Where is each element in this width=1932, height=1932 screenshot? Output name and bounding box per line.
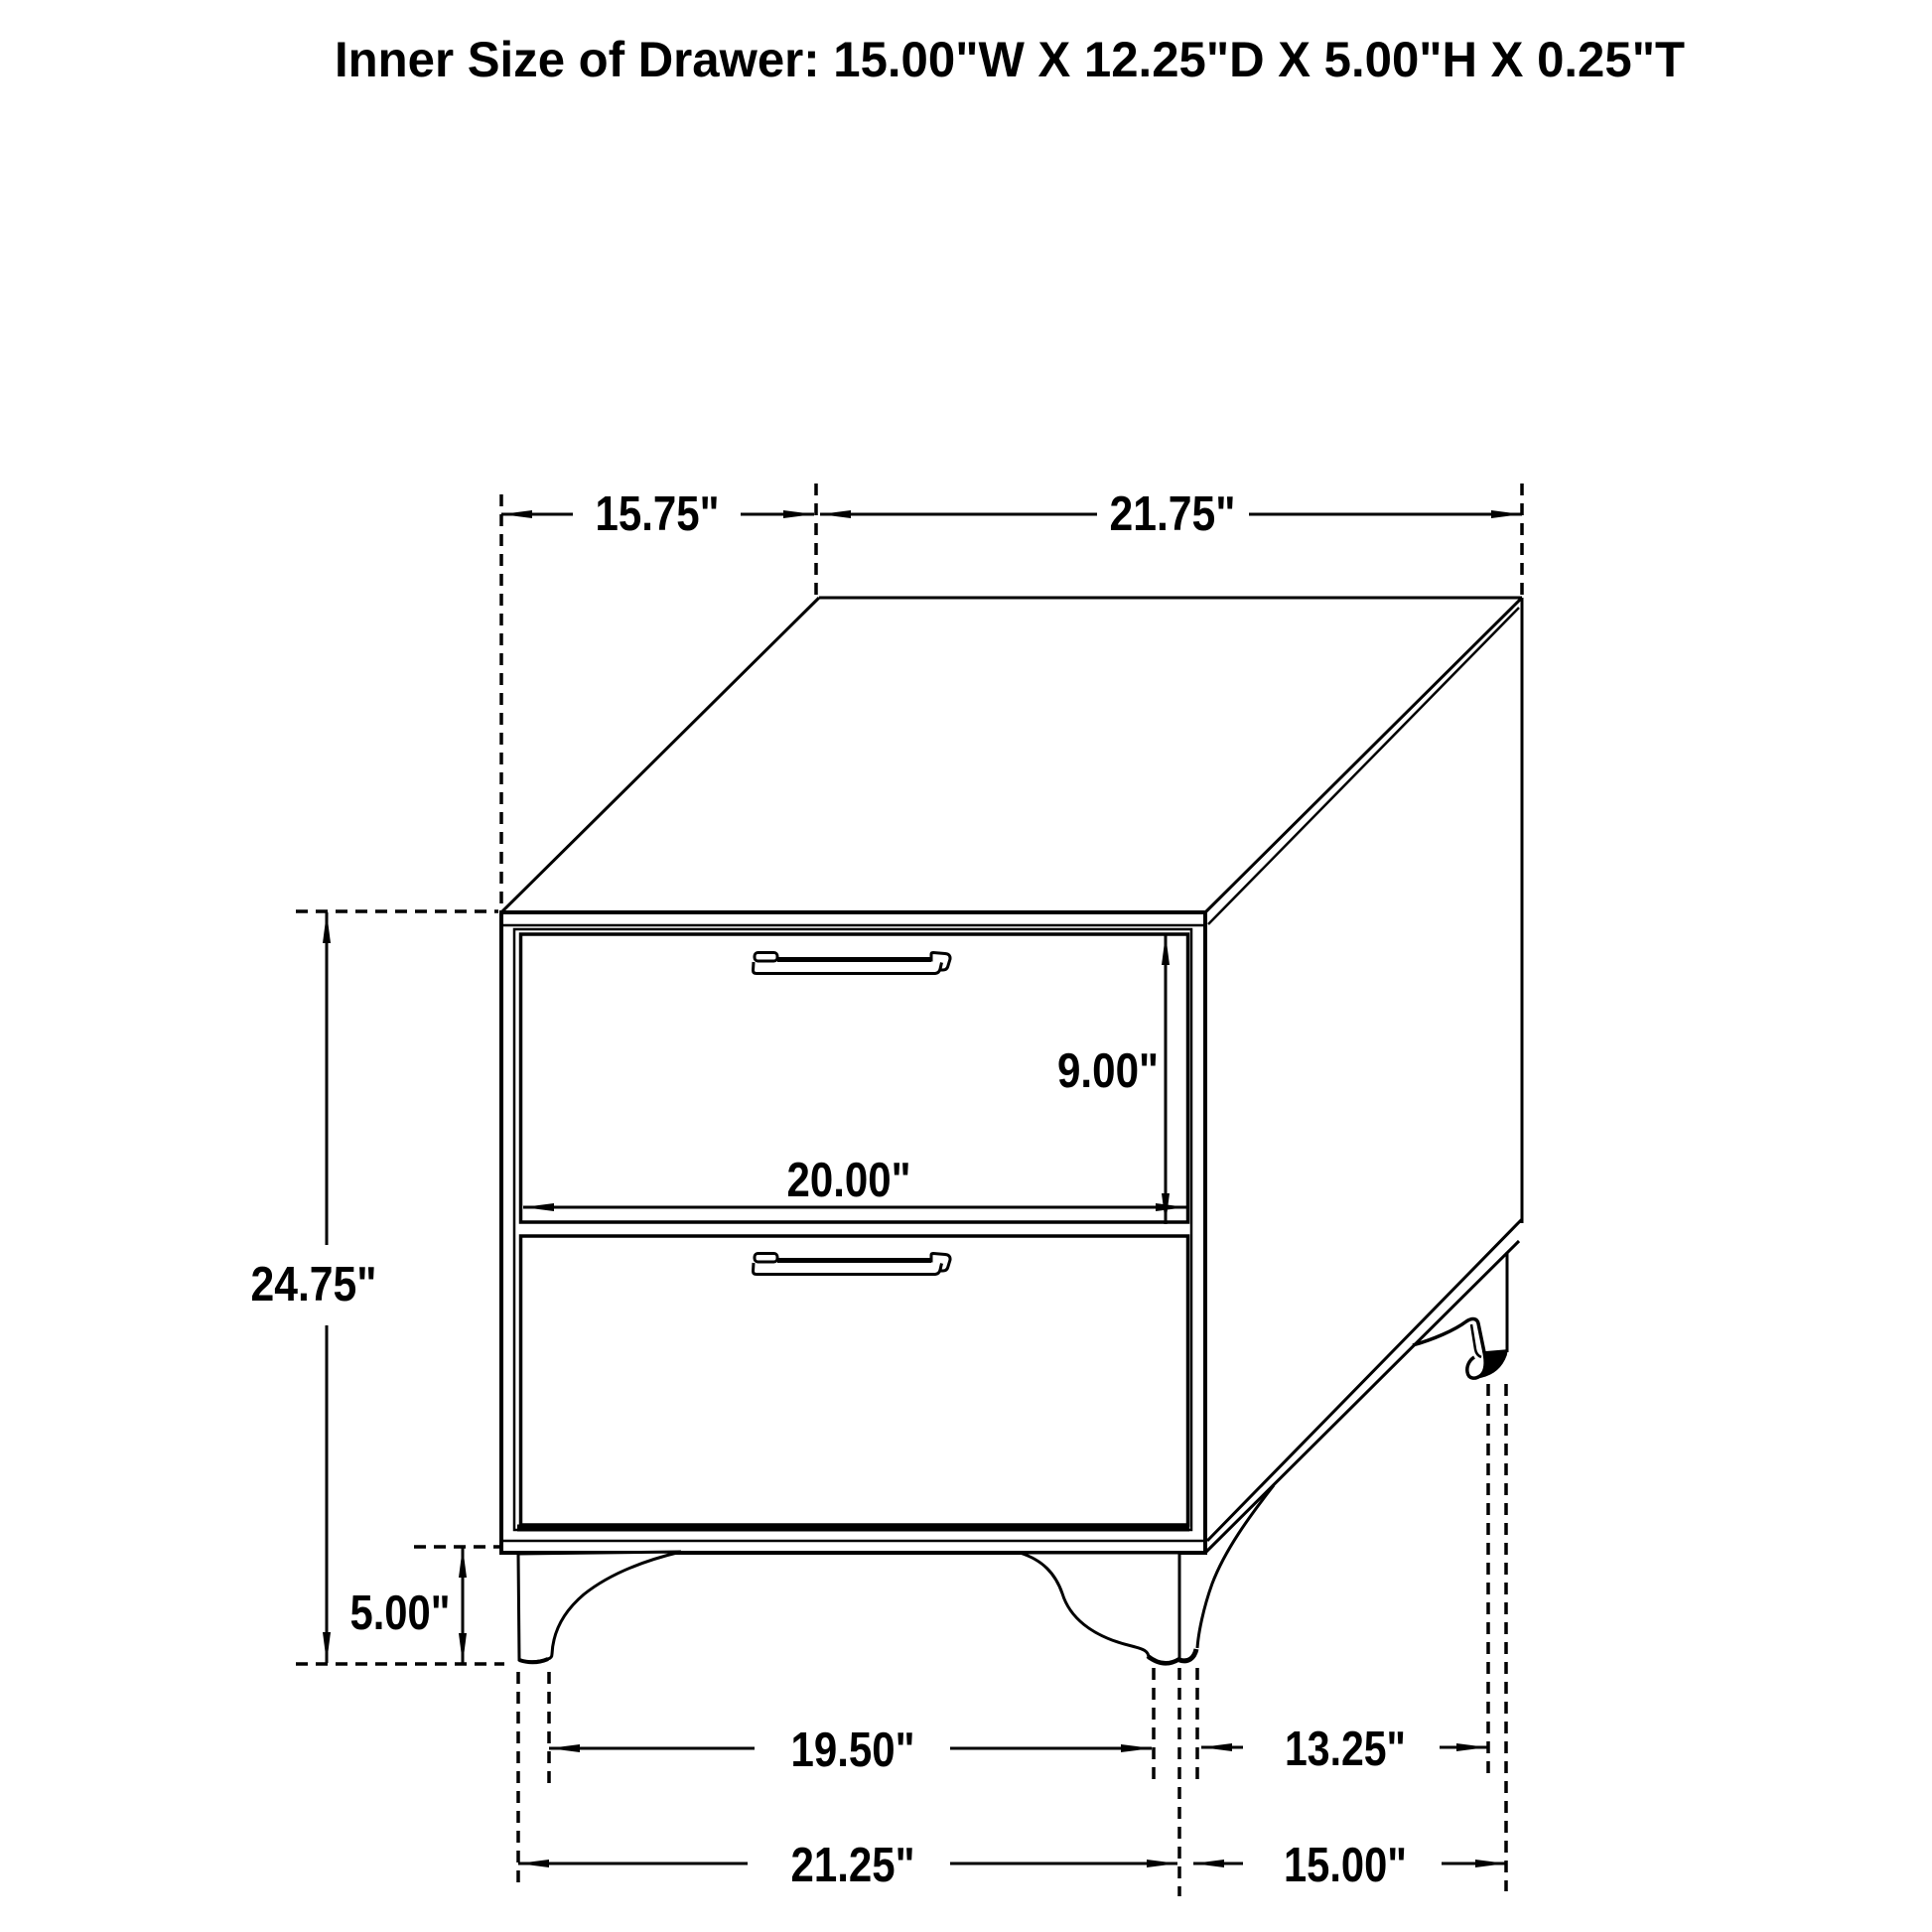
svg-text:15.75": 15.75" <box>596 487 720 541</box>
svg-text:21.25": 21.25" <box>791 1839 915 1892</box>
svg-text:9.00": 9.00" <box>1057 1044 1159 1098</box>
svg-text:13.25": 13.25" <box>1285 1723 1406 1776</box>
svg-text:5.00": 5.00" <box>350 1587 451 1640</box>
svg-text:15.00": 15.00" <box>1284 1839 1407 1892</box>
svg-text:24.75": 24.75" <box>251 1258 377 1311</box>
svg-text:21.75": 21.75" <box>1110 487 1236 541</box>
svg-text:20.00": 20.00" <box>787 1154 911 1207</box>
svg-text:19.50": 19.50" <box>791 1724 915 1777</box>
svg-text:Inner Size of Drawer: 15.00"W: Inner Size of Drawer: 15.00"W X 12.25"D … <box>335 32 1685 87</box>
